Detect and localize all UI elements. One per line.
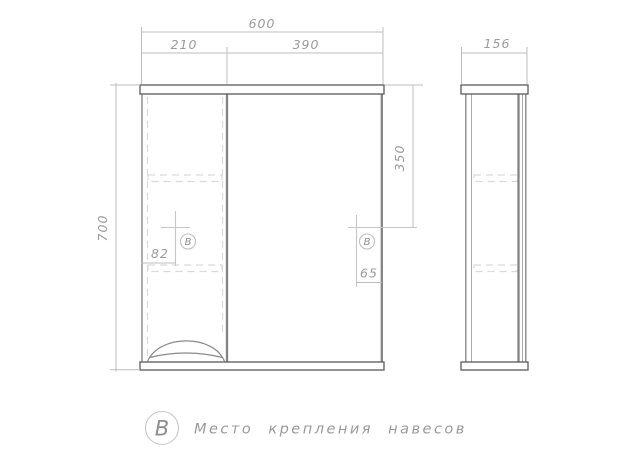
side-top-cap xyxy=(461,85,528,94)
dim-side-depth: 156 xyxy=(484,36,511,51)
door-bottom-curve-outer xyxy=(148,341,225,362)
side-shelf-upper-hidden xyxy=(474,175,517,182)
side-view xyxy=(461,85,528,370)
dim-hanger-offset-left: 82 xyxy=(151,246,169,261)
mirror-cabinet-drawing: В В xyxy=(0,0,630,470)
hanger-marker-left-label: В xyxy=(185,237,192,248)
front-shelf-upper-hidden xyxy=(148,175,222,182)
dim-overall-width: 600 xyxy=(249,16,276,31)
front-shelf-lower-hidden xyxy=(148,265,222,272)
dim-door-section-width: 210 xyxy=(171,37,198,52)
technical-drawing-page: В В xyxy=(0,0,630,470)
dimension-annotations: 600 210 390 700 350 82 65 156 xyxy=(95,16,527,372)
legend-symbol: В xyxy=(155,417,169,441)
dim-hanger-offset-right: 65 xyxy=(360,266,378,281)
front-bottom-cap xyxy=(140,362,384,370)
dim-mirror-section-width: 390 xyxy=(293,37,320,52)
hanger-marker-right-label: В xyxy=(364,237,371,248)
legend: В Место крепления навесов xyxy=(146,412,467,445)
side-bottom-cap xyxy=(461,362,528,370)
front-top-cap xyxy=(140,85,384,94)
side-shelf-lower-hidden xyxy=(474,265,517,272)
dim-overall-height: 700 xyxy=(95,215,110,242)
door-bottom-curve-inner xyxy=(150,353,223,358)
front-view: В В xyxy=(140,85,417,370)
dim-hanger-offset-top: 350 xyxy=(392,145,407,172)
legend-description: Место крепления навесов xyxy=(194,422,467,438)
